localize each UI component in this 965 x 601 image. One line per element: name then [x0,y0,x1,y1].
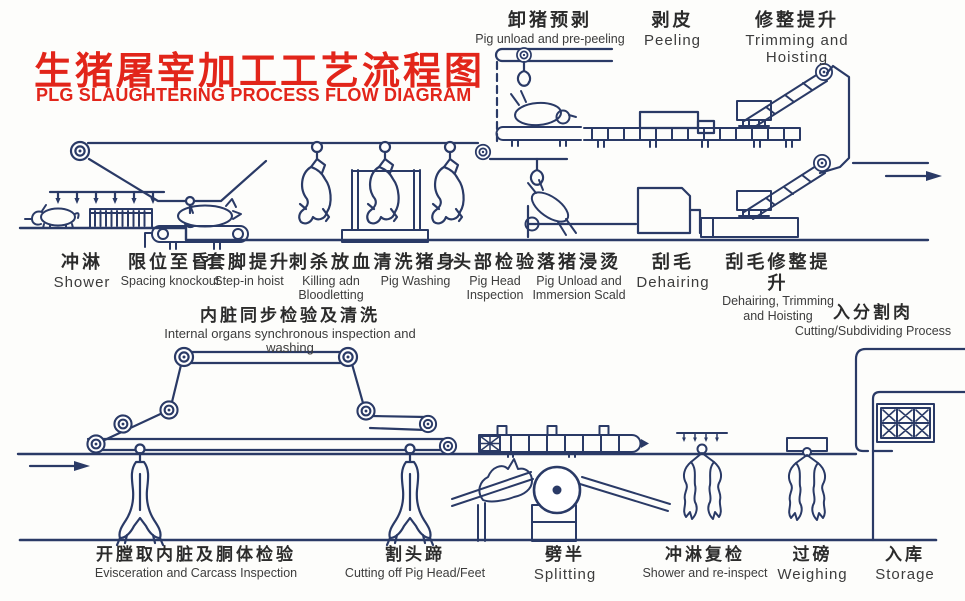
flow-diagram-canvas: 生猪屠宰加工工艺流程图 PLG SLAUGHTERING PROCESS FLO… [0,0,965,601]
station-zh: 过磅 [770,545,855,565]
station-zh: 刺杀放血 [285,252,377,273]
label-station-step-in-hoist: 套脚提升 Step-in hoist [200,252,298,288]
station-en: Cutting/Subdividing Process [782,324,964,338]
station-zh: 清洗猪身 [368,252,463,273]
label-station-killing-bloodletting: 刺杀放血 Killing adn Bloodletting [285,252,377,302]
weighing-scale [787,438,827,520]
storage-crates [877,404,934,442]
washing-frame [342,170,428,242]
station-zh: 落猪浸烫 [530,252,628,273]
station-zh: 开膛取内脏及胴体检验 [90,545,302,565]
label-station-cut-head-feet: 割头蹄 Cutting off Pig Head/Feet [330,545,500,580]
station-en: Trimming and Hoisting [712,32,882,67]
station-en: Splitting [520,566,610,583]
station-en: Pig Washing [368,274,463,288]
station-zh: 入库 [862,545,948,565]
label-station-evisceration: 开膛取内脏及胴体检验 Evisceration and Carcass Insp… [90,545,302,580]
station-en: Evisceration and Carcass Inspection [90,566,302,580]
station-en: Storage [862,566,948,583]
dehairing-machine [638,188,700,233]
station-zh: 剥皮 [620,10,725,31]
label-station-weighing: 过磅 Weighing [770,545,855,583]
station-zh: 入分割肉 [782,303,964,323]
peeling-machine [640,112,714,133]
label-station-head-inspection: 头部检验 Pig Head Inspection [450,252,540,302]
station-en: Internal organs synchronous inspection a… [140,327,440,357]
label-station-pig-washing: 清洗猪身 Pig Washing [368,252,463,288]
label-cutting-subdividing: 入分割肉 Cutting/Subdividing Process [782,303,964,338]
label-station-storage: 入库 Storage [862,545,948,583]
station-zh: 套脚提升 [200,252,298,273]
station-zh: 割头蹄 [330,545,500,565]
station-zh: 修整提升 [712,10,882,31]
flow-arrow-right-upper [886,171,942,181]
station-zh: 卸猪预剥 [455,10,645,31]
peeling-conveyor [584,128,800,147]
stun-restrainer [90,209,152,228]
station-en: Shower and re-inspect [638,566,772,580]
evisc-carcass [387,445,433,546]
splitting-saw [452,459,670,541]
elevator-lower [701,155,830,237]
station-en: Weighing [770,566,855,583]
label-station-shower: 冲淋 Shower [38,252,126,291]
label-station-peeling: 剥皮 Peeling [620,10,725,49]
evisc-carcass [117,445,163,546]
page-title-en: PLG SLAUGHTERING PROCESS FLOW DIAGRAM [36,85,476,106]
shower-reinspect [677,433,727,519]
hanging-pig [367,142,398,223]
label-station-shower-reinspect: 冲淋复检 Shower and re-inspect [638,545,772,580]
pre-peel-pig [497,91,581,146]
label-station-trimming-hoisting: 修整提升 Trimming and Hoisting [712,10,882,66]
scald-tank [528,206,636,237]
station-en: Pig Head Inspection [450,274,540,303]
station-en: Cutting off Pig Head/Feet [330,566,500,580]
label-station-pig-unload-pre-peel: 卸猪预剥 Pig unload and pre-peeling [455,10,645,46]
station-en: Killing adn Bloodletting [285,274,377,303]
label-station-immersion-scald: 落猪浸烫 Pig Unload and Immersion Scald [530,252,628,302]
hanging-pig [432,142,463,223]
station-en: Step-in hoist [200,274,298,288]
ground-upper [20,228,928,240]
live-pig [25,205,79,228]
station-en: Pig Unload and Immersion Scald [530,274,628,303]
drop-hook [531,159,543,185]
station-zh: 刮毛 [628,252,718,273]
station-zh: 冲淋 [38,252,126,273]
inspection-conveyor [87,348,456,454]
station-zh: 冲淋复检 [638,545,772,565]
head-cutting-table [479,426,649,457]
elevator-upper [737,64,832,128]
station-en: Peeling [620,32,725,49]
station-en: Pig unload and pre-peeling [455,32,645,46]
label-station-splitting: 劈半 Splitting [520,545,610,583]
hanging-pig [299,142,330,223]
label-station-dehairing: 刮毛 Dehairing [628,252,718,291]
station-zh: 头部检验 [450,252,540,273]
station-zh: 劈半 [520,545,610,565]
falling-pig [526,180,577,235]
station-en: Dehairing [628,274,718,291]
station-en: Shower [38,274,126,291]
flow-arrow-right-lower [30,461,90,471]
label-internal-organs-inspection: 内脏同步检验及清洗 Internal organs synchronous in… [140,306,440,356]
station-zh: 刮毛修整提升 [716,252,840,293]
station-zh: 内脏同步检验及清洗 [140,306,440,326]
step-in-hoist [145,199,248,249]
